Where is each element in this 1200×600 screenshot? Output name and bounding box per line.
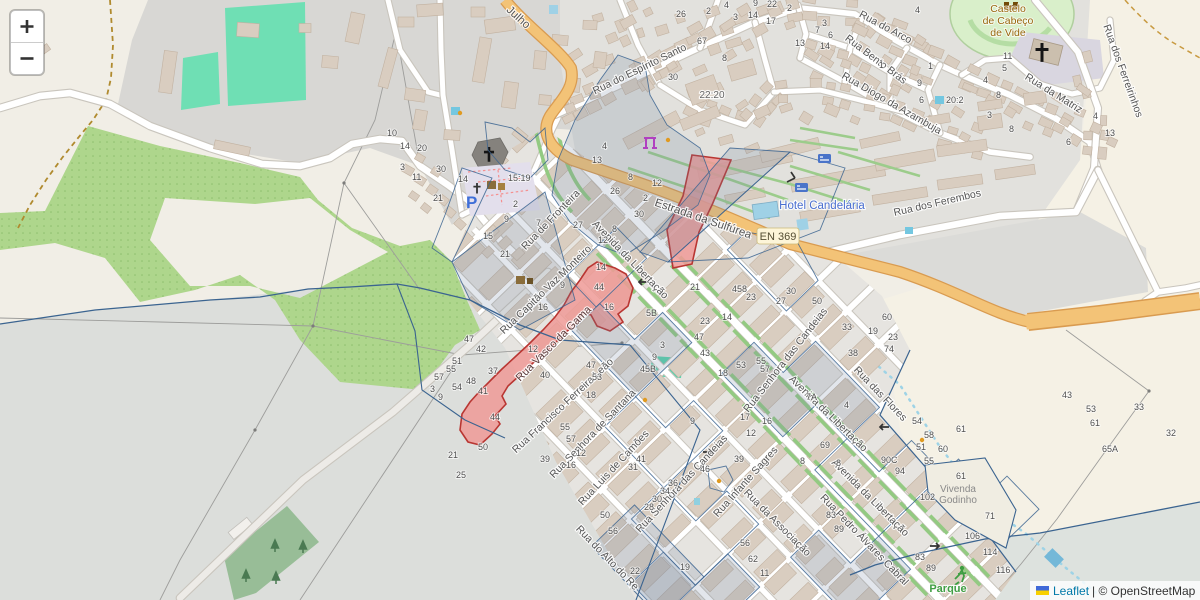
svg-text:Vivenda: Vivenda (940, 484, 976, 495)
svg-text:28: 28 (644, 502, 654, 512)
svg-text:53: 53 (592, 372, 602, 382)
svg-text:89: 89 (834, 524, 844, 534)
svg-text:4: 4 (844, 400, 849, 410)
svg-text:9: 9 (690, 416, 695, 426)
svg-text:15: 15 (483, 231, 493, 241)
svg-text:43: 43 (1062, 390, 1072, 400)
svg-text:69: 69 (820, 440, 830, 450)
svg-text:19: 19 (680, 562, 690, 572)
svg-text:39: 39 (540, 454, 550, 464)
svg-text:P: P (466, 193, 477, 212)
svg-text:17: 17 (740, 412, 750, 422)
svg-text:16: 16 (566, 460, 576, 470)
svg-text:1: 1 (879, 60, 884, 70)
svg-text:18: 18 (718, 368, 728, 378)
svg-text:16: 16 (538, 302, 548, 312)
svg-text:94: 94 (895, 466, 905, 476)
svg-text:4: 4 (915, 5, 920, 15)
svg-text:33: 33 (842, 322, 852, 332)
svg-text:13: 13 (1105, 128, 1115, 138)
svg-text:17: 17 (766, 16, 776, 26)
svg-text:9: 9 (560, 280, 565, 290)
svg-text:65A: 65A (1102, 444, 1118, 454)
svg-text:| © OpenStreetMap: | © OpenStreetMap (1092, 584, 1196, 598)
svg-text:30: 30 (634, 209, 644, 219)
svg-text:5B: 5B (646, 308, 657, 318)
svg-text:15:19: 15:19 (508, 173, 531, 183)
svg-text:20:2: 20:2 (946, 95, 964, 105)
svg-text:14: 14 (596, 262, 606, 272)
svg-text:74: 74 (884, 344, 894, 354)
svg-text:26: 26 (676, 9, 686, 19)
svg-text:30: 30 (786, 286, 796, 296)
svg-text:6: 6 (919, 95, 924, 105)
svg-text:57: 57 (760, 364, 770, 374)
svg-text:Leaflet: Leaflet (1053, 584, 1090, 598)
svg-text:19: 19 (868, 326, 878, 336)
svg-text:12: 12 (598, 235, 608, 245)
svg-text:25: 25 (456, 470, 466, 480)
svg-text:12: 12 (528, 344, 538, 354)
svg-text:Castelo: Castelo (990, 3, 1026, 15)
svg-text:89: 89 (926, 563, 936, 573)
svg-text:27: 27 (776, 296, 786, 306)
svg-text:71: 71 (985, 511, 995, 521)
svg-text:61: 61 (1090, 418, 1100, 428)
svg-text:8: 8 (628, 172, 633, 182)
svg-text:46: 46 (700, 464, 710, 474)
svg-text:14: 14 (400, 141, 410, 151)
svg-text:8: 8 (836, 458, 841, 468)
svg-text:38: 38 (848, 348, 858, 358)
svg-text:23: 23 (700, 316, 710, 326)
svg-text:8: 8 (722, 53, 727, 63)
svg-text:14: 14 (458, 174, 468, 184)
svg-text:44: 44 (594, 282, 604, 292)
svg-text:44: 44 (490, 412, 500, 422)
svg-text:14: 14 (748, 10, 758, 20)
svg-text:de Cabeço: de Cabeço (983, 15, 1034, 27)
svg-text:8: 8 (800, 456, 805, 466)
svg-text:50: 50 (600, 510, 610, 520)
svg-text:40: 40 (540, 370, 550, 380)
svg-text:2: 2 (787, 3, 792, 13)
svg-text:57: 57 (434, 372, 444, 382)
svg-text:18: 18 (586, 390, 596, 400)
svg-text:60: 60 (938, 444, 948, 454)
svg-text:8: 8 (1009, 124, 1014, 134)
svg-text:14: 14 (820, 41, 830, 51)
svg-text:61: 61 (956, 471, 966, 481)
svg-text:11: 11 (760, 568, 769, 578)
svg-text:13: 13 (592, 155, 602, 165)
svg-text:3: 3 (660, 340, 665, 350)
svg-text:50: 50 (478, 442, 488, 452)
svg-text:6: 6 (828, 30, 833, 40)
svg-text:31: 31 (628, 462, 638, 472)
svg-text:7: 7 (815, 25, 820, 35)
svg-text:22: 22 (767, 0, 777, 9)
svg-text:41: 41 (478, 386, 488, 396)
svg-text:57: 57 (566, 434, 576, 444)
svg-text:458: 458 (732, 284, 747, 294)
svg-text:16: 16 (604, 302, 614, 312)
svg-text:6: 6 (1066, 137, 1071, 147)
svg-text:de Vide: de Vide (990, 27, 1026, 39)
svg-text:Godinho: Godinho (939, 495, 977, 506)
svg-text:2: 2 (513, 199, 518, 209)
svg-text:56: 56 (608, 526, 618, 536)
svg-text:37: 37 (488, 366, 498, 376)
svg-text:47: 47 (464, 334, 474, 344)
svg-text:55: 55 (446, 364, 456, 374)
svg-text:90C: 90C (881, 455, 898, 465)
svg-text:4: 4 (602, 141, 607, 151)
svg-text:114: 114 (983, 547, 997, 557)
svg-text:11: 11 (412, 172, 421, 182)
svg-text:32: 32 (1166, 428, 1176, 438)
svg-text:16: 16 (762, 416, 772, 426)
svg-text:4: 4 (983, 75, 988, 85)
svg-text:4: 4 (1093, 111, 1098, 121)
svg-text:2: 2 (706, 6, 711, 16)
svg-text:10: 10 (387, 128, 397, 138)
svg-text:61: 61 (956, 424, 966, 434)
svg-text:3: 3 (430, 384, 435, 394)
svg-text:23: 23 (746, 292, 756, 302)
svg-text:50: 50 (812, 296, 822, 306)
svg-text:13: 13 (795, 38, 805, 48)
svg-text:3: 3 (822, 18, 827, 28)
svg-text:2: 2 (643, 193, 648, 203)
svg-text:23: 23 (888, 332, 898, 342)
svg-text:3: 3 (987, 110, 992, 120)
svg-text:22: 22 (630, 566, 640, 576)
svg-text:67: 67 (697, 36, 707, 46)
svg-text:58: 58 (924, 430, 934, 440)
svg-text:21: 21 (448, 450, 458, 460)
svg-text:60: 60 (882, 312, 892, 322)
svg-text:30: 30 (436, 164, 446, 174)
svg-text:1: 1 (928, 61, 933, 71)
svg-text:43: 43 (700, 348, 710, 358)
svg-text:9: 9 (917, 78, 922, 88)
svg-text:9: 9 (504, 214, 509, 224)
svg-text:27: 27 (573, 220, 583, 230)
svg-text:9: 9 (652, 352, 657, 362)
svg-text:56: 56 (740, 538, 750, 548)
svg-text:12: 12 (652, 178, 662, 188)
svg-text:30: 30 (668, 72, 678, 82)
svg-text:102: 102 (920, 492, 935, 502)
svg-text:54: 54 (912, 416, 922, 426)
svg-text:83: 83 (826, 510, 836, 520)
svg-text:3: 3 (733, 12, 738, 22)
svg-text:42: 42 (476, 344, 486, 354)
svg-text:8: 8 (996, 90, 1001, 100)
svg-text:55: 55 (560, 422, 570, 432)
svg-text:12: 12 (746, 428, 756, 438)
svg-text:12: 12 (576, 448, 586, 458)
svg-text:55: 55 (924, 456, 934, 466)
svg-text:83: 83 (915, 552, 925, 562)
svg-text:9: 9 (753, 0, 758, 8)
svg-text:7: 7 (536, 218, 541, 228)
svg-text:4: 4 (724, 0, 729, 10)
svg-text:20: 20 (417, 143, 427, 153)
svg-text:26: 26 (610, 186, 620, 196)
svg-text:48: 48 (466, 376, 476, 386)
svg-text:EN 369: EN 369 (760, 231, 797, 243)
svg-text:54: 54 (452, 382, 462, 392)
svg-text:62: 62 (748, 554, 758, 564)
svg-text:14: 14 (722, 312, 732, 322)
svg-text:47: 47 (586, 360, 596, 370)
svg-text:21: 21 (433, 193, 443, 203)
svg-text:106: 106 (965, 531, 980, 541)
svg-text:21: 21 (690, 282, 700, 292)
svg-text:39: 39 (734, 454, 744, 464)
svg-text:53: 53 (1086, 404, 1096, 414)
svg-text:9: 9 (438, 392, 443, 402)
svg-text:21: 21 (500, 249, 510, 259)
svg-text:45B: 45B (640, 364, 656, 374)
svg-text:8: 8 (612, 224, 617, 234)
svg-text:47: 47 (694, 332, 704, 342)
svg-text:Parque: Parque (929, 583, 966, 595)
svg-text:51: 51 (916, 442, 926, 452)
svg-text:11: 11 (1003, 51, 1012, 61)
svg-text:22:20: 22:20 (699, 90, 724, 101)
svg-text:3: 3 (400, 162, 405, 172)
svg-text:33: 33 (1134, 402, 1144, 412)
svg-text:Hotel Candelária: Hotel Candelária (779, 200, 865, 212)
svg-text:116: 116 (996, 565, 1010, 575)
svg-text:5: 5 (1002, 63, 1007, 73)
svg-text:7A: 7A (806, 392, 817, 402)
svg-text:53: 53 (736, 360, 746, 370)
